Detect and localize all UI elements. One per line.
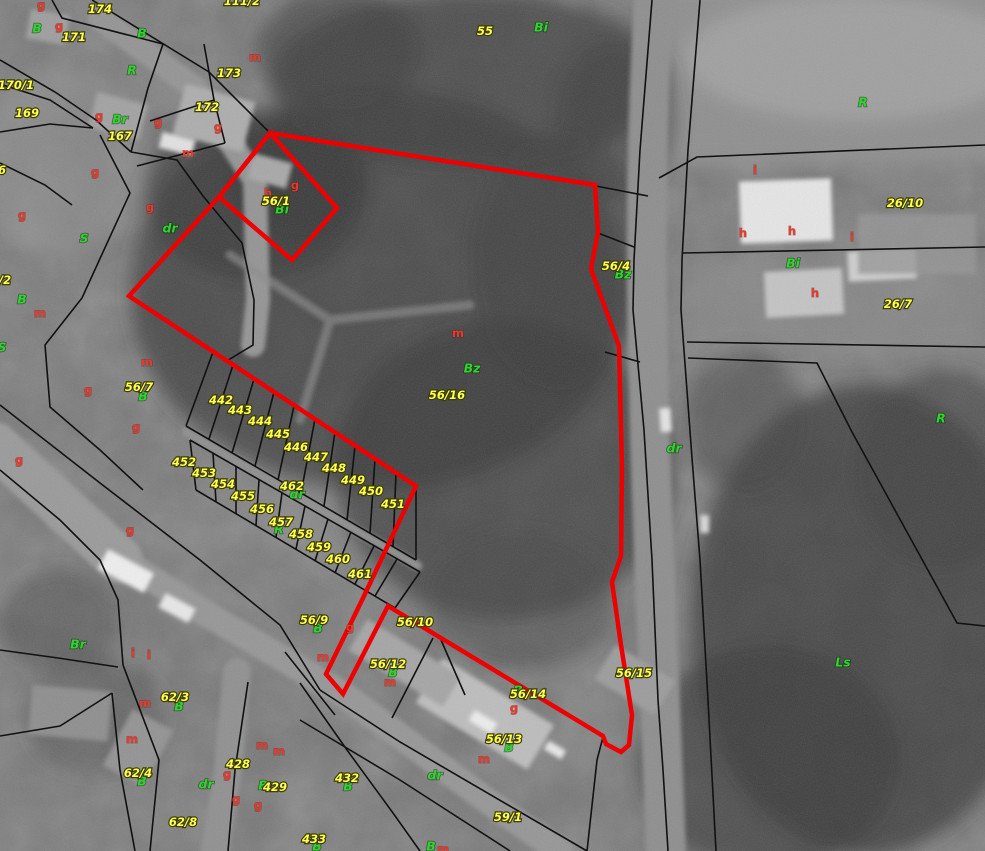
landuse-class-label: B [137, 26, 147, 41]
parcel-number-label: 173 [217, 66, 241, 80]
parcel-number-label: 62/3 [161, 690, 189, 704]
landuse-code-label: i [147, 648, 151, 662]
landuse-class-label: B [17, 292, 27, 307]
landuse-class-label: B [426, 839, 436, 851]
landuse-code-label: m [437, 842, 449, 851]
parcel-number-label: 56/14 [510, 687, 546, 701]
parcel-number-label: 111/2 [224, 0, 260, 8]
parcel-number-label: 455 [230, 489, 255, 503]
parcel-number-label: 451 [380, 497, 405, 511]
landuse-code-label: i [753, 163, 757, 177]
parcel-number-label: 56/16 [429, 388, 465, 402]
landuse-code-label: g [84, 383, 92, 397]
landuse-code-label: i [131, 646, 135, 660]
parcel-number-label: 170/1 [0, 78, 34, 92]
landuse-class-label: Br [112, 112, 129, 127]
landuse-code-label: g [510, 701, 518, 715]
landuse-code-label: m [141, 355, 153, 369]
landuse-code-label: g [346, 620, 354, 634]
parcel-number-label: 429 [262, 780, 287, 794]
map-viewport[interactable]: ggmgggmggghgmmggggmihhihiimmgggmmmgmgmmB… [0, 0, 985, 851]
landuse-code-label: i [850, 230, 854, 244]
parcel-number-label: 445 [265, 427, 290, 441]
landuse-class-label: dr [666, 441, 682, 456]
landuse-code-label: g [214, 120, 222, 134]
landuse-code-label: g [91, 165, 99, 179]
landuse-code-label: m [273, 744, 285, 758]
parcel-number-label: 450 [358, 484, 383, 498]
landuse-code-label: g [254, 798, 262, 812]
parcel-number-label: 460 [325, 552, 350, 566]
landuse-code-label: m [478, 752, 490, 766]
aerial-photo-layer [0, 0, 985, 851]
parcel-number-label: 171 [62, 30, 86, 44]
landuse-code-label: g [154, 115, 162, 129]
landuse-code-label: g [232, 792, 240, 806]
landuse-code-label: m [452, 326, 464, 340]
landuse-class-label: S [0, 340, 7, 355]
landuse-code-label: m [126, 732, 138, 746]
parcel-number-label: 56/15 [616, 666, 652, 680]
parcel-number-label: 433 [301, 832, 326, 846]
parcel-number-label: 56/7 [125, 380, 153, 394]
landuse-code-label: m [182, 146, 194, 160]
map-canvas[interactable]: ggmgggmggghgmmggggmihhihiimmgggmmmgmgmmB… [0, 0, 985, 851]
landuse-code-label: m [317, 650, 329, 664]
landuse-code-label: g [18, 208, 26, 222]
parcel-number-label: 56/4 [602, 259, 630, 273]
landuse-class-label: B [32, 21, 42, 36]
parcel-number-label: 56/10 [397, 615, 433, 629]
landuse-code-label: g [37, 0, 45, 12]
photo-grain [0, 0, 985, 851]
parcel-number-label: 462 [279, 479, 304, 493]
parcel-number-label: 26/10 [887, 196, 923, 210]
landuse-class-label: Bi [786, 256, 801, 271]
parcel-number-label: 26/7 [884, 297, 912, 311]
parcel-number-label: 444 [247, 414, 272, 428]
landuse-class-label: dr [198, 777, 214, 792]
landuse-code-label: g [146, 200, 154, 214]
landuse-code-label: h [788, 224, 796, 238]
parcel-number-label: 62/8 [169, 815, 197, 829]
parcel-number-label: 56/12 [370, 657, 406, 671]
parcel-number-label: 172 [195, 100, 219, 114]
landuse-code-label: m [34, 306, 46, 320]
parcel-number-label: 169 [15, 106, 39, 120]
parcel-number-label: 458 [288, 527, 313, 541]
parcel-number-label: 59/1 [494, 810, 522, 824]
landuse-code-label: m [249, 50, 261, 64]
parcel-number-label: 167 [108, 129, 132, 143]
landuse-code-label: h [739, 226, 747, 240]
parcel-number-label: 456 [249, 502, 274, 516]
landuse-class-label: Br [70, 637, 87, 652]
parcel-number-label: 432 [334, 771, 359, 785]
landuse-code-label: g [132, 420, 140, 434]
landuse-class-label: dr [427, 768, 443, 783]
landuse-code-label: h [811, 286, 819, 300]
landuse-class-label: dr [162, 221, 178, 236]
landuse-class-label: Bz [464, 361, 482, 376]
parcel-number-label: 62/4 [124, 766, 152, 780]
landuse-class-label: S [79, 231, 88, 246]
landuse-code-label: g [291, 178, 299, 192]
parcel-number-label: 428 [225, 757, 250, 771]
parcel-number-label: 56/9 [300, 613, 328, 627]
landuse-code-label: g [126, 523, 134, 537]
parcel-number-label: 174 [88, 2, 112, 16]
parcel-number-label: 55 [477, 24, 493, 38]
parcel-number-label: 56/1 [262, 194, 290, 208]
parcel-number-label: /2 [0, 273, 11, 287]
parcel-number-label: 6 [0, 163, 6, 177]
parcel-number-label: 56/13 [486, 732, 522, 746]
landuse-code-label: m [256, 738, 268, 752]
landuse-class-label: Bi [534, 20, 549, 35]
landuse-class-label: R [936, 411, 946, 426]
landuse-class-label: R [127, 63, 137, 78]
parcel-number-label: 461 [347, 567, 372, 581]
landuse-code-label: m [139, 696, 151, 710]
landuse-code-label: g [15, 453, 23, 467]
landuse-class-label: R [858, 95, 868, 110]
landuse-class-label: Ls [835, 655, 850, 670]
landuse-code-label: g [95, 109, 103, 123]
